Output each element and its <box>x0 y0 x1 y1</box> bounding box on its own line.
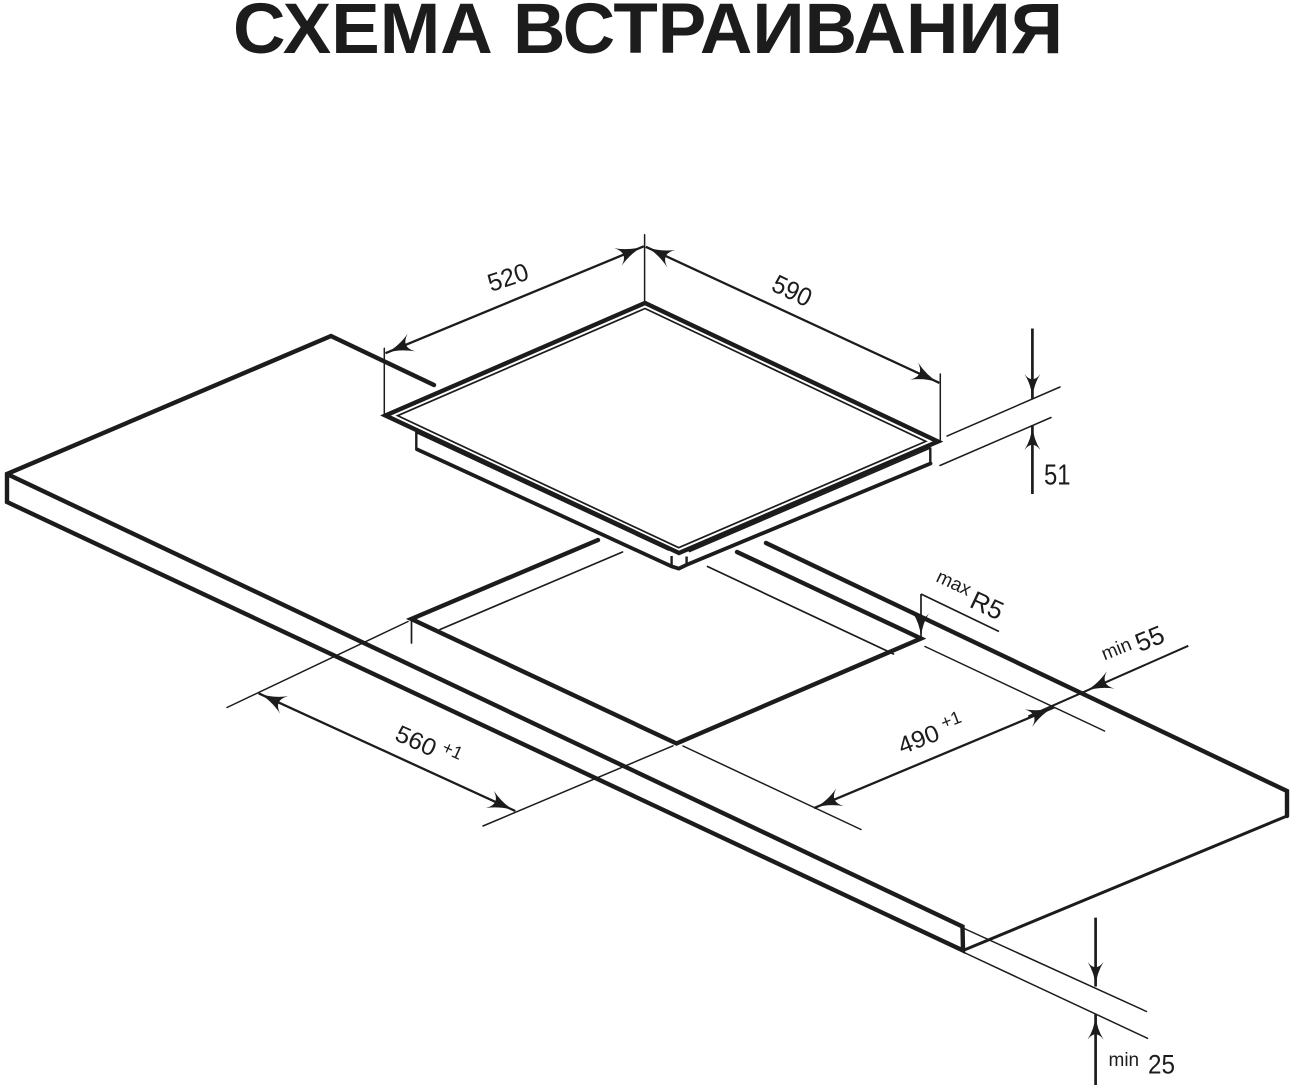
svg-text:СХЕМА ВСТРАИВАНИЯ: СХЕМА ВСТРАИВАНИЯ <box>233 0 1063 69</box>
svg-text:25: 25 <box>1148 1050 1175 1080</box>
svg-text:51: 51 <box>1044 460 1071 492</box>
svg-text:min: min <box>1109 1050 1140 1071</box>
